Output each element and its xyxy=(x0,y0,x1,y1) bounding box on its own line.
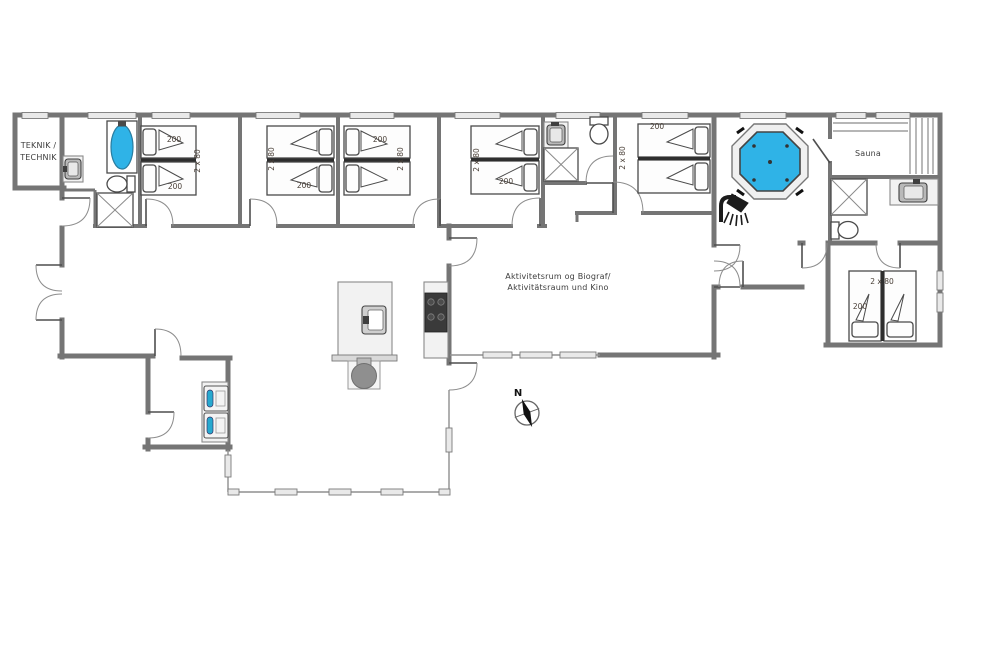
hot-tub-icon xyxy=(732,124,808,199)
glass-walls xyxy=(228,355,600,492)
bathroom-middle xyxy=(544,117,608,181)
bed-label: 2 x 80 xyxy=(396,147,405,171)
kitchen-island xyxy=(332,282,397,389)
washing-machine-icon xyxy=(204,386,228,411)
toilet-icon xyxy=(590,117,608,144)
bed-label: 2 x 80 xyxy=(870,277,894,286)
washing-machine-icon xyxy=(204,413,228,438)
sink-icon xyxy=(544,122,568,148)
round-table-icon xyxy=(348,358,380,389)
utility-room xyxy=(202,382,228,442)
teknik-label-line1: TEKNIK / xyxy=(20,141,57,150)
activity-room-label-line2: Aktivitätsraum und Kino xyxy=(507,283,608,292)
floor-plan-page: N TEKNIK / TECHNIK Sauna Aktivitetsrum o… xyxy=(0,0,1000,667)
sauna-benches-icon xyxy=(833,118,933,174)
compass-north-label: N xyxy=(514,388,522,399)
bed-label: 200 xyxy=(650,122,665,131)
bed-label: 2 x 80 xyxy=(472,148,481,172)
floor-plan: N TEKNIK / TECHNIK Sauna Aktivitetsrum o… xyxy=(0,0,1000,667)
toilet-icon xyxy=(107,176,135,192)
sink-icon xyxy=(63,156,83,182)
teknik-label-line2: TECHNIK xyxy=(19,153,57,162)
bathroom-right xyxy=(831,179,938,239)
compass-icon: N xyxy=(510,388,545,432)
bed-label: 200 xyxy=(168,182,183,191)
shower-icon xyxy=(544,148,578,181)
bed-label: 2 x 80 xyxy=(618,146,627,170)
bed-label: 200 xyxy=(499,177,514,186)
bed-label: 200 xyxy=(853,302,868,311)
shower-icon xyxy=(831,179,867,215)
shower-icon xyxy=(97,193,133,227)
bathroom-left xyxy=(63,121,137,227)
bed-label: 200 xyxy=(373,135,388,144)
sink-icon xyxy=(362,306,386,334)
activity-room-label-line1: Aktivitetsrum og Biograf/ xyxy=(505,272,610,281)
sink-icon xyxy=(890,179,938,205)
shower-head-icon xyxy=(721,194,748,226)
stove-icon xyxy=(424,282,448,358)
bathtub-icon xyxy=(107,121,137,173)
bed-label: 200 xyxy=(167,135,182,144)
sauna-label: Sauna xyxy=(855,149,881,158)
bed-label: 2 x 80 xyxy=(193,149,202,173)
bed-label: 200 xyxy=(297,181,312,190)
bed-label: 2 x 80 xyxy=(267,147,276,171)
bedroom5-beds xyxy=(638,124,710,193)
toilet-icon xyxy=(831,222,858,240)
